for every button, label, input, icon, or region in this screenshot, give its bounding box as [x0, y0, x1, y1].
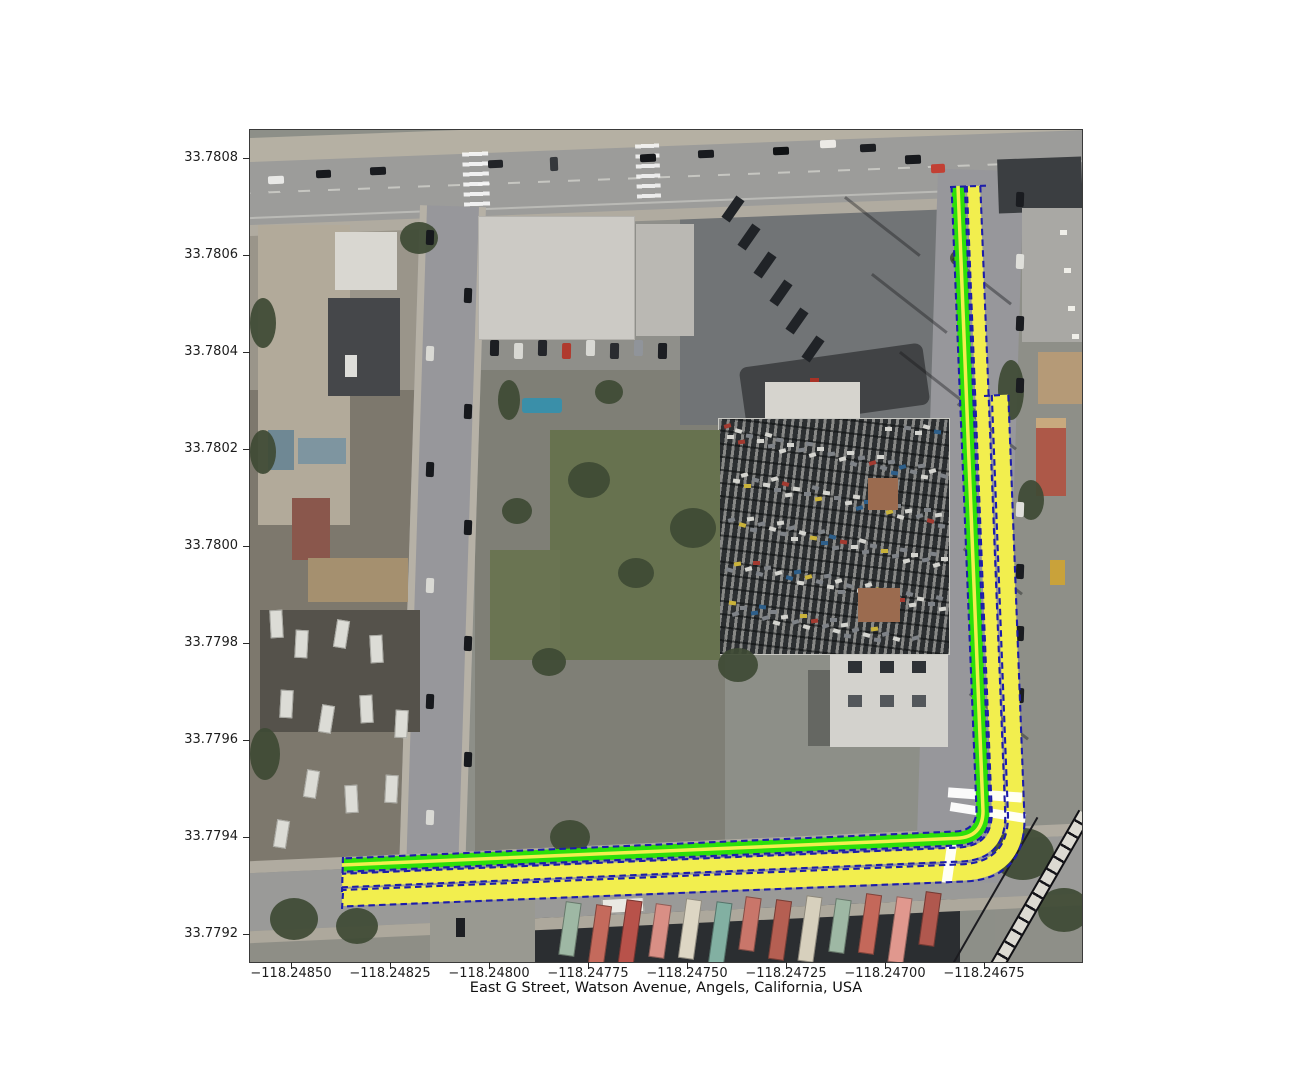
y-tick-label: 33.7792 — [148, 926, 238, 941]
route-lane-edge — [342, 186, 1005, 887]
route-secondary — [342, 186, 983, 865]
y-tick-mark — [243, 546, 250, 547]
route-lane-edge — [342, 395, 1025, 907]
y-tick-mark — [243, 352, 250, 353]
x-tick-label: −118.24850 — [236, 966, 346, 981]
y-tick-mark — [243, 255, 250, 256]
y-tick-label: 33.7794 — [148, 829, 238, 844]
x-tick-label: −118.24675 — [929, 966, 1039, 981]
y-tick-label: 33.7806 — [148, 247, 238, 262]
y-tick-mark — [243, 449, 250, 450]
x-tick-label: −118.24800 — [434, 966, 544, 981]
route-lane-1 — [342, 186, 999, 881]
route-lane-edge — [342, 186, 977, 859]
y-tick-label: 33.7802 — [148, 441, 238, 456]
x-tick-label: −118.24825 — [335, 966, 445, 981]
map-canvas — [250, 130, 1082, 962]
y-tick-mark — [243, 837, 250, 838]
x-tick-label: −118.24700 — [830, 966, 940, 981]
y-tick-mark — [243, 740, 250, 741]
y-tick-label: 33.7808 — [148, 150, 238, 165]
route-overlay — [250, 130, 1082, 962]
axis-title: East G Street, Watson Avenue, Angels, Ca… — [250, 980, 1082, 996]
y-tick-mark — [243, 158, 250, 159]
route-lane-edge — [342, 186, 992, 874]
route-secondary-core — [342, 186, 983, 865]
y-tick-label: 33.7800 — [148, 538, 238, 553]
x-tick-label: −118.24750 — [632, 966, 742, 981]
y-tick-mark — [243, 643, 250, 644]
y-tick-label: 33.7798 — [148, 635, 238, 650]
route-lane-2 — [342, 395, 1016, 898]
route-lane-edge — [342, 186, 990, 872]
y-tick-label: 33.7804 — [148, 344, 238, 359]
x-tick-label: −118.24725 — [731, 966, 841, 981]
route-lane-edge — [342, 395, 1008, 890]
y-tick-mark — [243, 934, 250, 935]
y-tick-label: 33.7796 — [148, 732, 238, 747]
x-tick-label: −118.24775 — [533, 966, 643, 981]
matplotlib-figure: East G Street, Watson Avenue, Angels, Ca… — [0, 0, 1299, 1080]
